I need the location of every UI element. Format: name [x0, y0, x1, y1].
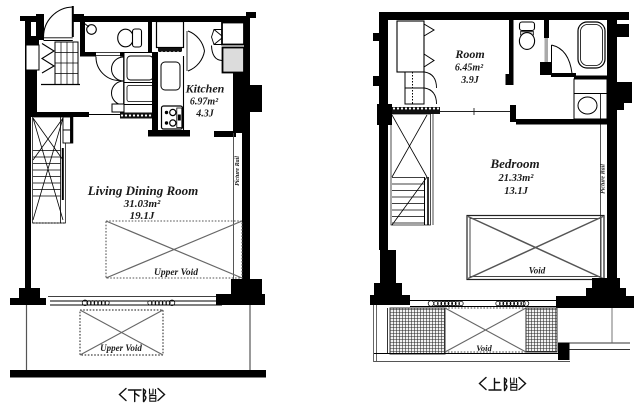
svg-text:Living Dining Room: Living Dining Room — [87, 183, 199, 198]
svg-text:Kitchen: Kitchen — [185, 82, 225, 96]
svg-text:Upper Void: Upper Void — [154, 268, 198, 278]
svg-text:Upper Void: Upper Void — [100, 343, 142, 353]
svg-text:Picture Rail: Picture Rail — [235, 156, 241, 186]
svg-text:31.03m²: 31.03m² — [123, 198, 161, 210]
svg-text:13.1J: 13.1J — [504, 186, 528, 197]
svg-text:4.3J: 4.3J — [195, 109, 215, 120]
svg-text:Void: Void — [476, 343, 492, 353]
svg-text:19.1J: 19.1J — [130, 210, 155, 222]
svg-text:Void: Void — [529, 266, 546, 276]
svg-text:Picture Rail: Picture Rail — [601, 164, 607, 194]
svg-text:3.9J: 3.9J — [460, 75, 480, 86]
svg-text:6.45m²: 6.45m² — [455, 63, 484, 74]
svg-text:Room: Room — [454, 47, 484, 61]
svg-text:6.97m²: 6.97m² — [190, 97, 219, 108]
svg-text:Bedroom: Bedroom — [489, 156, 539, 171]
svg-text:21.33m²: 21.33m² — [498, 173, 535, 184]
